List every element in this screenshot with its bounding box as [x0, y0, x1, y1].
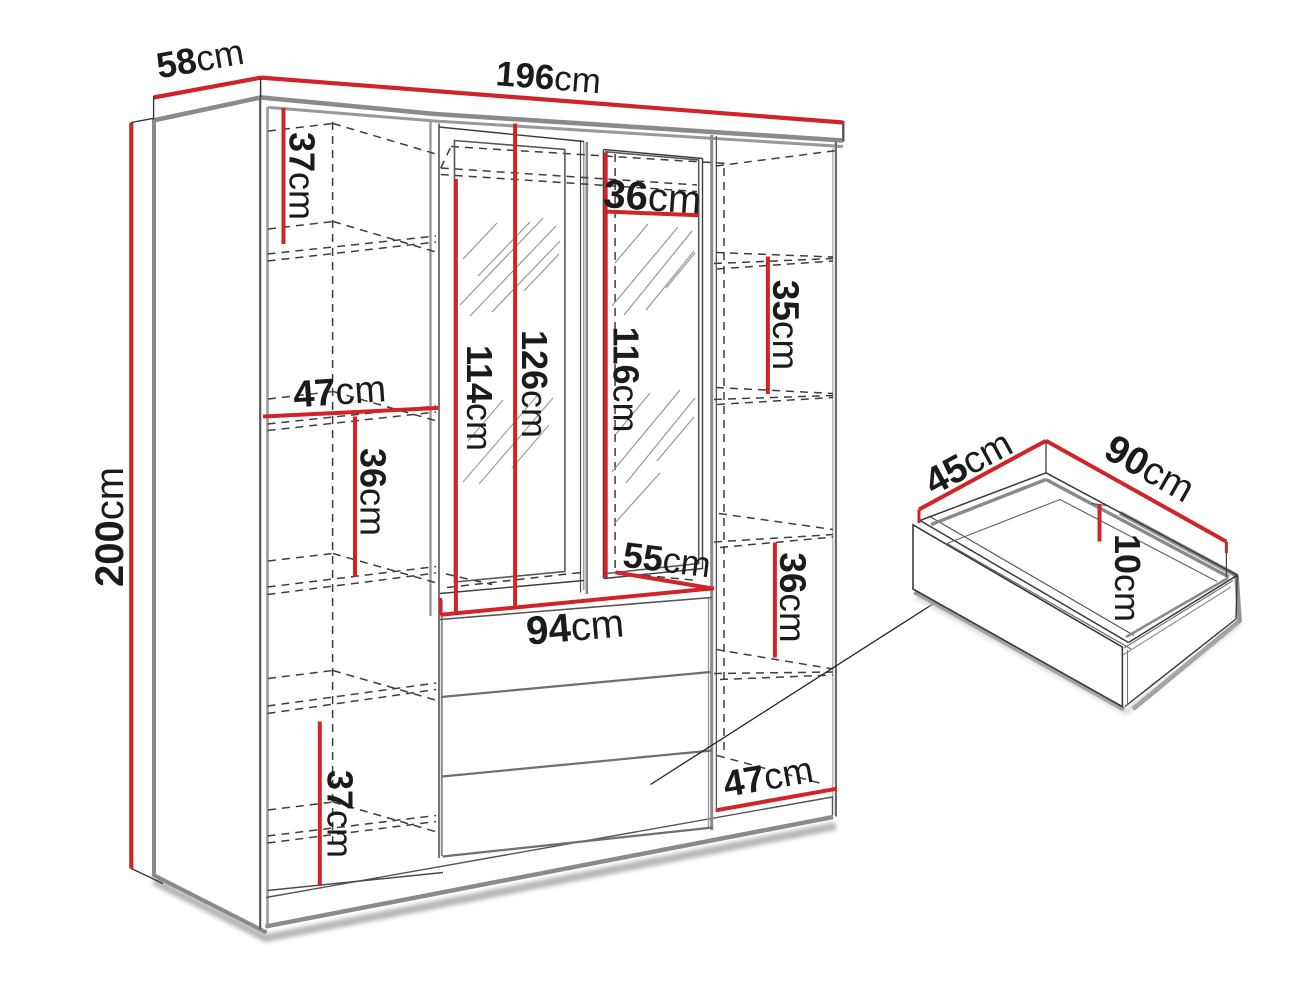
svg-text:35cm: 35cm [765, 280, 806, 370]
svg-text:10cm: 10cm [1107, 534, 1148, 622]
svg-text:196cm: 196cm [495, 54, 603, 101]
svg-text:37cm: 37cm [281, 132, 322, 220]
svg-text:47cm: 47cm [292, 368, 388, 416]
svg-text:36cm: 36cm [602, 172, 703, 223]
svg-text:36cm: 36cm [772, 552, 813, 642]
svg-text:116cm: 116cm [606, 326, 647, 432]
svg-text:114cm: 114cm [459, 345, 500, 451]
svg-text:94cm: 94cm [524, 601, 625, 653]
svg-text:200cm: 200cm [88, 467, 132, 587]
svg-text:36cm: 36cm [352, 448, 393, 536]
svg-text:126cm: 126cm [514, 330, 555, 438]
svg-text:37cm: 37cm [319, 770, 360, 858]
